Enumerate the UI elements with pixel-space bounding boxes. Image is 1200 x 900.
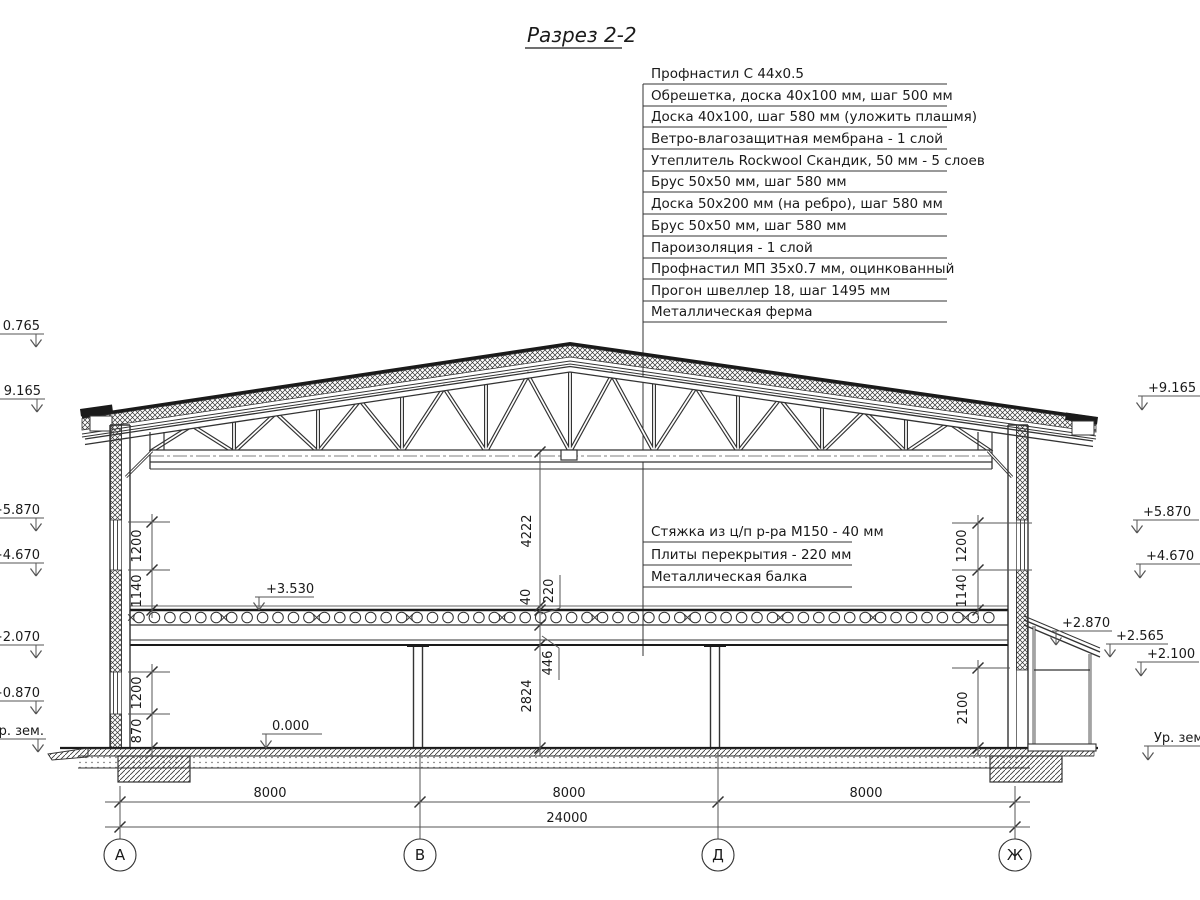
floor-callout-3: Металлическая балка [651,569,807,585]
elevation-labels: 0.765 9.165 +5.870 +4.670 +2.070 +0.870 … [0,319,1200,746]
dim-span-1: 8000 [253,786,286,801]
roof-callout-11: Прогон швеллер 18, шаг 1495 мм [651,283,890,299]
elev-floor-3530: +3.530 [266,582,314,597]
roof-callout-7: Доска 50х200 мм (на ребро), шаг 580 мм [651,196,943,212]
section-drawing: Разрез 2-2 Профнастил С 44х0.5 Обрешетка… [0,0,1200,900]
dim-left-1200-upper: 1200 [130,529,145,562]
elev-left-4670: +4.670 [0,548,40,563]
elevation-mark [1051,631,1113,645]
elevation-mark [1137,396,1200,410]
dim-right-2100: 2100 [956,691,971,724]
roof-callout-4: Ветро-влагозащитная мембрана - 1 слой [651,131,943,147]
elev-left-9165: 9.165 [4,384,41,399]
elevation-mark [1136,662,1200,676]
roof-callout-3: Доска 40х100, шаг 580 мм (уложить плашмя… [651,109,977,125]
ground-floor [48,748,1098,782]
elev-left-5870: +5.870 [0,503,40,518]
left-wall [110,425,130,748]
dim-total: 24000 [546,811,587,826]
floor-callout-2: Плиты перекрытия - 220 мм [651,547,851,563]
floor-callout-1: Стяжка из ц/п р-ра М150 - 40 мм [651,524,884,540]
elev-right-2565: +2.565 [1116,629,1164,644]
dim-center-446: 446 [541,651,556,676]
elevation-mark [261,734,323,748]
elevation-mark [0,334,44,347]
interior-columns [407,646,726,748]
elevation-mark [1143,746,1200,760]
elevation-mark [0,399,45,412]
roof-callout-9: Пароизоляция - 1 слой [651,240,813,256]
elevation-mark [1135,564,1200,578]
drawing-sheet: Разрез 2-2 Профнастил С 44х0.5 Обрешетка… [0,0,1200,900]
elev-right-9165: +9.165 [1148,381,1196,396]
page-title: Разрез 2-2 [527,23,637,47]
right-foundation [990,756,1062,782]
annex [1024,616,1100,751]
dim-left-1140: 1140 [130,574,145,607]
axis-bubbles: А В Д Ж [104,839,1031,871]
right-wall [1008,425,1028,748]
dim-center-220: 220 [542,579,557,604]
elevation-mark [0,563,44,576]
dim-left-870: 870 [130,719,145,744]
elev-right-2870: +2.870 [1062,616,1110,631]
elev-left-2070: +2.070 [0,630,40,645]
axis-zh: Ж [1007,846,1023,864]
left-foundation [118,756,190,782]
floor-callout-table: Стяжка из ц/п р-ра М150 - 40 мм Плиты пе… [643,524,884,587]
roof-callout-2: Обрешетка, доска 40х100 мм, шаг 500 мм [651,88,953,104]
dim-right-1140: 1140 [955,574,970,607]
elev-right-2100: +2.100 [1147,647,1195,662]
elevation-mark [0,739,46,752]
elev-left-0870: +0.870 [0,686,40,701]
roof-callout-5: Утеплитель Rockwool Скандик, 50 мм - 5 с… [651,153,985,169]
dim-center-40: 40 [519,589,534,606]
dim-span-2: 8000 [552,786,585,801]
elev-right-5870: +5.870 [1143,505,1191,520]
elevation-mark [0,645,44,658]
roof-callout-10: Профнастил МП 35х0.7 мм, оцинкованный [651,261,954,277]
dim-center-2824: 2824 [520,679,535,712]
elev-left-10765: 0.765 [3,319,40,334]
axis-b: В [415,846,425,864]
elevation-mark [0,701,44,714]
title-block: Разрез 2-2 [525,23,637,48]
floor-beam [130,625,1008,645]
elev-right-ground: Ур. зем. [1154,731,1200,746]
elevation-mark [1132,520,1200,533]
roof-callout-12: Металлическая ферма [651,304,813,320]
elevation-mark [254,597,315,610]
elev-left-ground: Ур. зем. [0,724,44,739]
axis-d: Д [712,846,724,864]
elevation-mark [0,518,44,531]
dim-span-3: 8000 [849,786,882,801]
roof-callout-6: Брус 50х50 мм, шаг 580 мм [651,174,847,190]
elev-right-4670: +4.670 [1146,549,1194,564]
axis-a: А [115,846,126,864]
elev-floor-0000: 0.000 [272,719,309,734]
dim-center-4222: 4222 [520,514,535,547]
roof-callout-1: Профнастил С 44х0.5 [651,66,804,82]
dim-right-1200: 1200 [955,529,970,562]
dim-left-1200-lower: 1200 [130,676,145,709]
roof-callout-8: Брус 50х50 мм, шаг 580 мм [651,218,847,234]
